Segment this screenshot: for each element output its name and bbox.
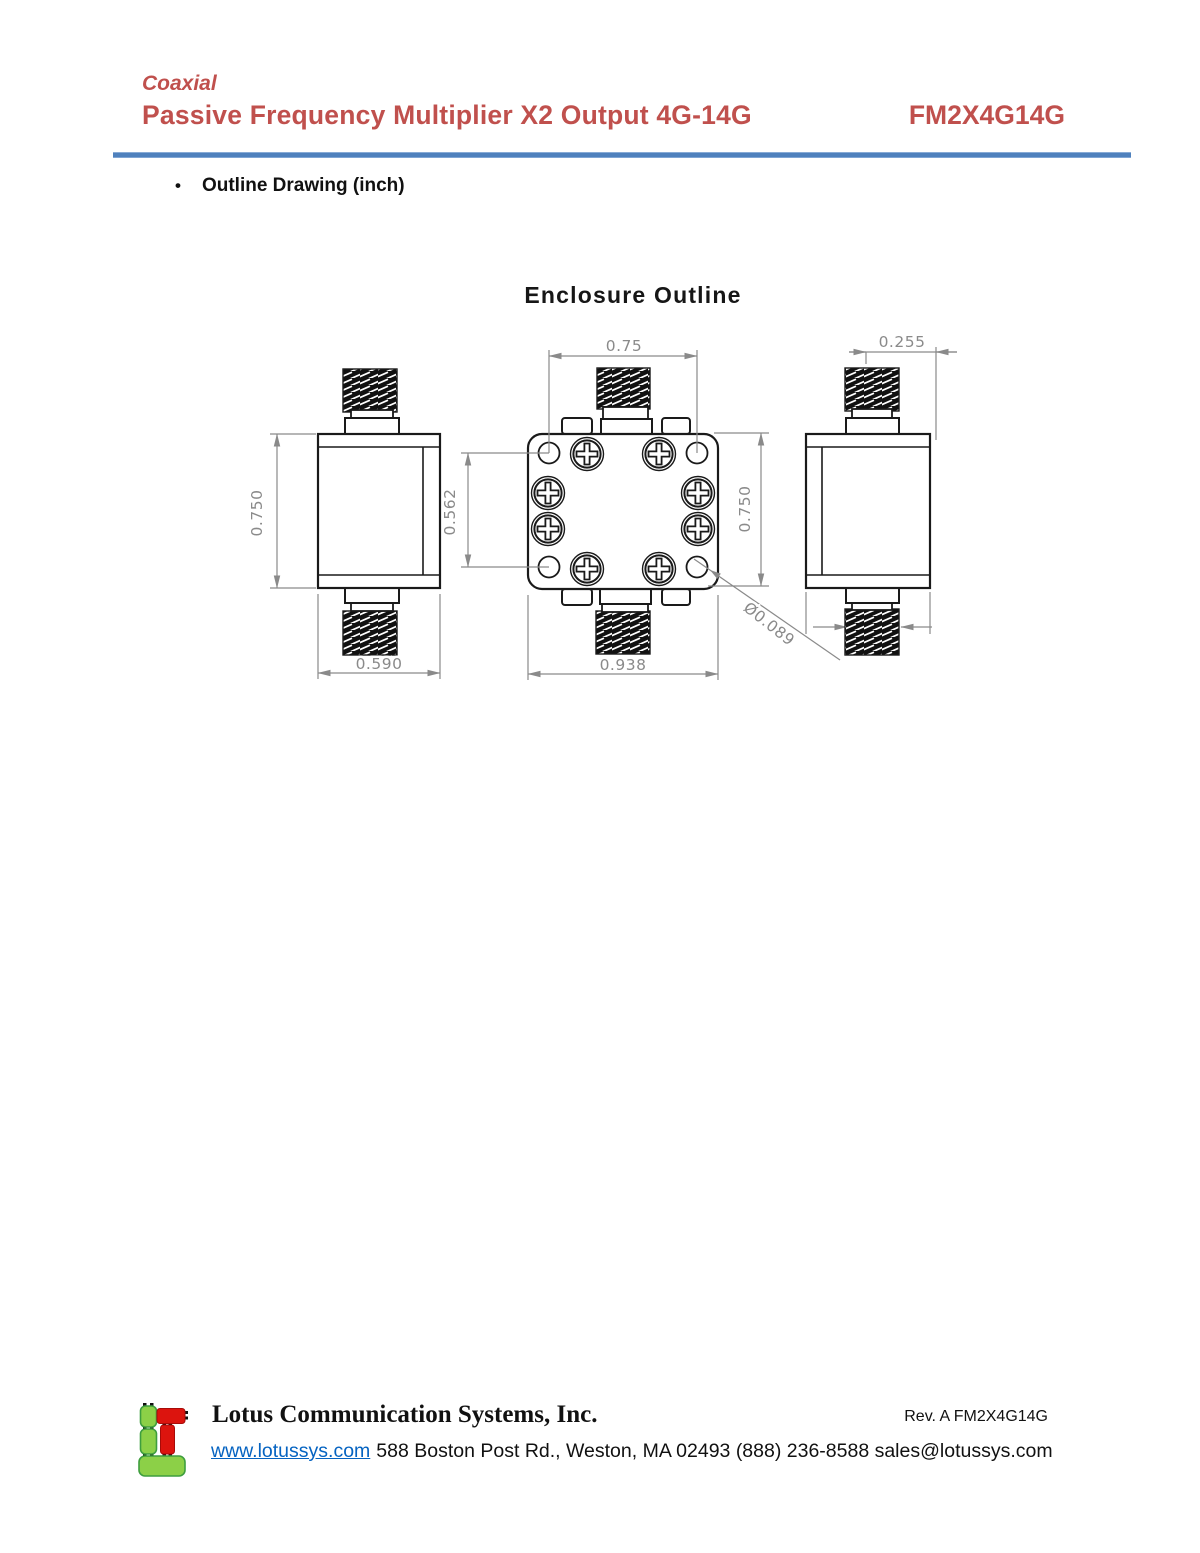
lotus-logo [138, 1402, 192, 1485]
dim-plate-width: 0.938 [600, 656, 647, 674]
side-view-left [318, 369, 440, 655]
screw [571, 553, 604, 586]
screw [643, 438, 676, 471]
logo-red-block [157, 1409, 185, 1424]
part-number: FM2X4G14G [909, 100, 1065, 131]
drawing-title: Enclosure Outline [524, 282, 741, 308]
sma-nut-top [846, 418, 899, 434]
body-outline [806, 434, 930, 588]
bullet-icon: • [175, 176, 181, 196]
sma-threads-top [845, 368, 899, 411]
mounting-tab [662, 589, 690, 605]
lotus-logo-svg [138, 1402, 192, 1480]
sma-threads-bottom [845, 609, 899, 655]
sma-collar-top [603, 407, 648, 419]
header-category: Coaxial [142, 72, 217, 96]
sma-nut-bottom [345, 588, 399, 603]
company-name: Lotus Communication Systems, Inc. [212, 1401, 597, 1429]
mounting-tab [662, 418, 690, 434]
dim-hole-spacing-vertical: 0.562 [441, 489, 459, 536]
header-rule [113, 152, 1131, 158]
sma-nut-top [345, 418, 399, 434]
revision-text: Rev. A FM2X4G14G [904, 1408, 1048, 1426]
dim-plate-height: 0.750 [736, 486, 754, 533]
outline-drawing-label: Outline Drawing (inch) [202, 175, 405, 197]
sma-base-bottom [600, 589, 651, 604]
screw [643, 553, 676, 586]
sma-threads-top [343, 369, 397, 412]
dim-hole-spacing-horizontal: 0.75 [606, 337, 643, 355]
body-outline [318, 434, 440, 588]
corner-hole [687, 557, 708, 578]
mounting-tab [562, 418, 592, 434]
sma-threads-bottom [343, 611, 397, 655]
dim-connector-offset: 0.255 [879, 333, 926, 351]
sma-threads-top [597, 368, 650, 409]
logo-green-block [141, 1406, 157, 1427]
footer-address-line: www.lotussys.com588 Boston Post Rd., Wes… [211, 1440, 1053, 1463]
dim-body-height: 0.750 [248, 490, 266, 537]
dim-hole-diameter: Ø0.089 [740, 599, 798, 650]
page-title: Passive Frequency Multiplier X2 Output 4… [142, 100, 752, 131]
screw [532, 477, 565, 510]
logo-red-block [161, 1425, 175, 1454]
screw [682, 513, 715, 546]
sma-nut-bottom [846, 588, 899, 603]
logo-green-block [139, 1456, 185, 1476]
sma-base-top [601, 419, 652, 435]
sma-threads-bottom [596, 611, 650, 654]
top-view [528, 368, 718, 654]
website-link[interactable]: www.lotussys.com [211, 1440, 370, 1462]
mounting-tab [562, 589, 592, 605]
enclosure-drawing-svg: Enclosure Outline [240, 260, 980, 700]
dim-body-width: 0.590 [356, 655, 403, 673]
screw [532, 513, 565, 546]
address-text: 588 Boston Post Rd., Weston, MA 02493 (8… [376, 1440, 1052, 1462]
side-view-right [806, 368, 930, 655]
logo-green-block [141, 1429, 157, 1454]
enclosure-outline-drawing: Enclosure Outline [240, 260, 980, 700]
datasheet-page: Coaxial Passive Frequency Multiplier X2 … [0, 0, 1200, 1553]
outline-drawing-heading: • Outline Drawing (inch) [175, 175, 405, 197]
screw [682, 477, 715, 510]
screw [571, 438, 604, 471]
